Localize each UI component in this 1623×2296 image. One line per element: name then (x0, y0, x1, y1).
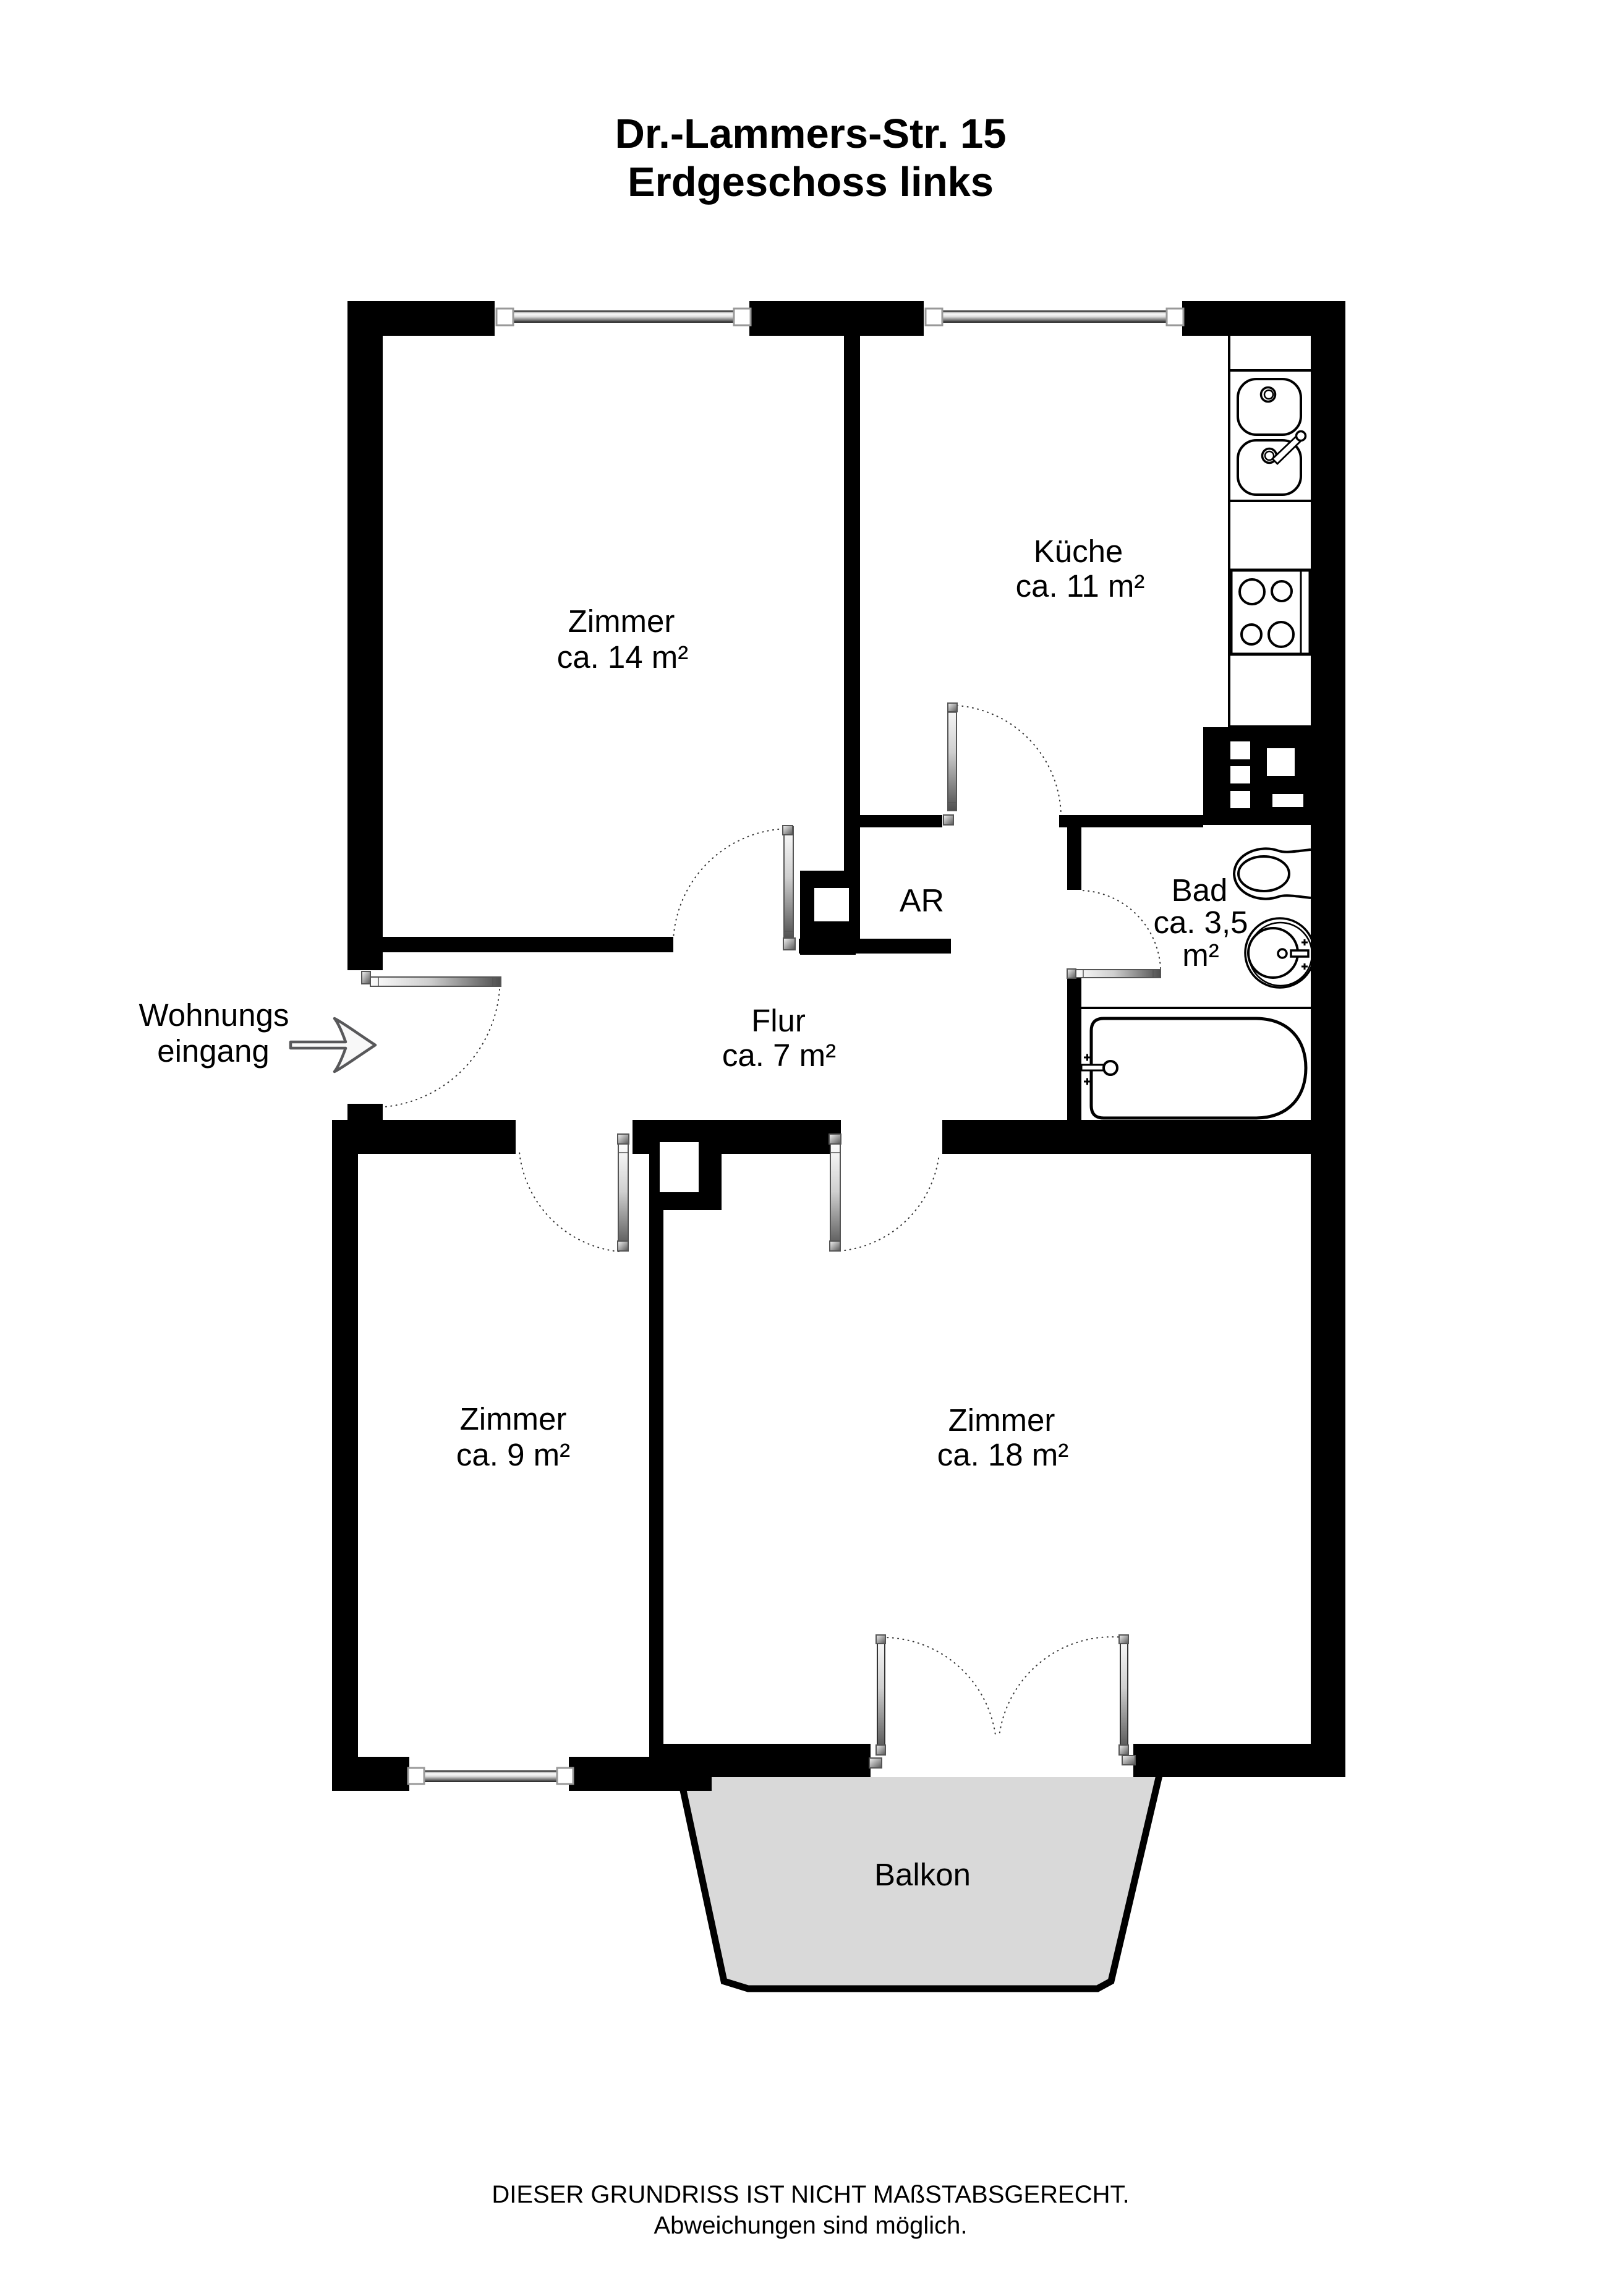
svg-text:ca. 9 m²: ca. 9 m² (456, 1437, 570, 1472)
svg-text:Zimmer: Zimmer (948, 1402, 1055, 1438)
svg-text:Wohnungs: Wohnungs (139, 997, 289, 1033)
svg-text:ca. 11 m²: ca. 11 m² (1016, 568, 1145, 604)
svg-text:m²: m² (1182, 937, 1219, 973)
svg-text:ca. 14 m²: ca. 14 m² (557, 639, 689, 675)
svg-text:Dr.-Lammers-Str. 15: Dr.-Lammers-Str. 15 (615, 111, 1006, 157)
svg-text:ca. 18 m²: ca. 18 m² (937, 1437, 1069, 1472)
svg-text:Zimmer: Zimmer (460, 1401, 567, 1436)
svg-text:Abweichungen sind möglich.: Abweichungen sind möglich. (654, 2212, 968, 2239)
svg-text:Erdgeschoss links: Erdgeschoss links (628, 159, 994, 205)
svg-text:Flur: Flur (751, 1003, 806, 1038)
svg-text:Balkon: Balkon (874, 1857, 971, 1892)
svg-text:Küche: Küche (1034, 534, 1123, 569)
svg-text:ca. 3,5: ca. 3,5 (1153, 905, 1248, 940)
svg-text:ca. 7 m²: ca. 7 m² (722, 1038, 836, 1073)
svg-text:AR: AR (900, 883, 944, 919)
svg-text:eingang: eingang (157, 1033, 270, 1069)
svg-text:Zimmer: Zimmer (568, 604, 675, 639)
svg-text:DIESER GRUNDRISS IST NICHT MAß: DIESER GRUNDRISS IST NICHT MAßSTABSGEREC… (492, 2181, 1129, 2208)
svg-text:Bad: Bad (1172, 873, 1228, 908)
